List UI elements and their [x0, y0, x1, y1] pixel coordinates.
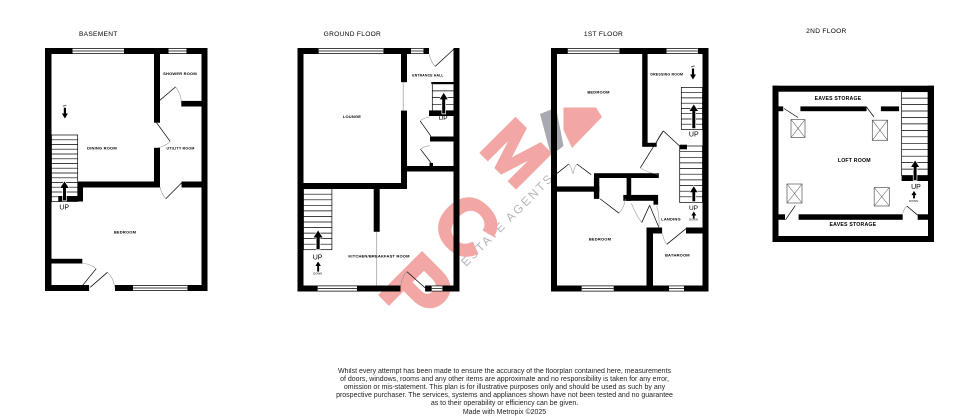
- svg-text:UP: UP: [313, 254, 323, 261]
- svg-text:UP: UP: [59, 204, 69, 211]
- svg-text:DINING ROOM: DINING ROOM: [87, 146, 117, 151]
- svg-text:BASEMENT: BASEMENT: [79, 31, 118, 38]
- svg-text:BEDROOM: BEDROOM: [589, 237, 612, 242]
- svg-text:UP: UP: [689, 132, 699, 139]
- svg-text:BEDROOM: BEDROOM: [587, 90, 610, 95]
- svg-text:LOUNGE: LOUNGE: [343, 114, 361, 119]
- svg-text:GROUND FLOOR: GROUND FLOOR: [324, 31, 381, 38]
- svg-text:BEDROOM: BEDROOM: [114, 230, 137, 235]
- svg-text:2ND FLOOR: 2ND FLOOR: [806, 28, 846, 35]
- svg-text:KITCHEN/BREAKFAST ROOM: KITCHEN/BREAKFAST ROOM: [348, 254, 410, 259]
- svg-text:BATHROOM: BATHROOM: [665, 253, 690, 258]
- svg-text:LANDING: LANDING: [661, 217, 681, 222]
- svg-text:UTILITY ROOM: UTILITY ROOM: [166, 147, 194, 151]
- svg-text:EAVES STORAGE: EAVES STORAGE: [815, 96, 862, 102]
- svg-text:UP: UP: [911, 184, 921, 191]
- svg-text:DOWN: DOWN: [313, 271, 322, 275]
- svg-text:DOWN: DOWN: [909, 199, 918, 203]
- svg-text:ENTRANCE HALL: ENTRANCE HALL: [412, 74, 443, 78]
- svg-text:DRESSING ROOM: DRESSING ROOM: [650, 73, 683, 77]
- svg-text:SHOWER ROOM: SHOWER ROOM: [163, 71, 197, 76]
- svg-text:1ST FLOOR: 1ST FLOOR: [584, 31, 623, 38]
- svg-text:UP: UP: [439, 115, 448, 122]
- svg-text:LOFT ROOM: LOFT ROOM: [838, 158, 871, 164]
- svg-text:DOWN: DOWN: [689, 218, 698, 222]
- svg-text:EAVES STORAGE: EAVES STORAGE: [829, 222, 876, 228]
- svg-text:UP: UP: [689, 205, 698, 212]
